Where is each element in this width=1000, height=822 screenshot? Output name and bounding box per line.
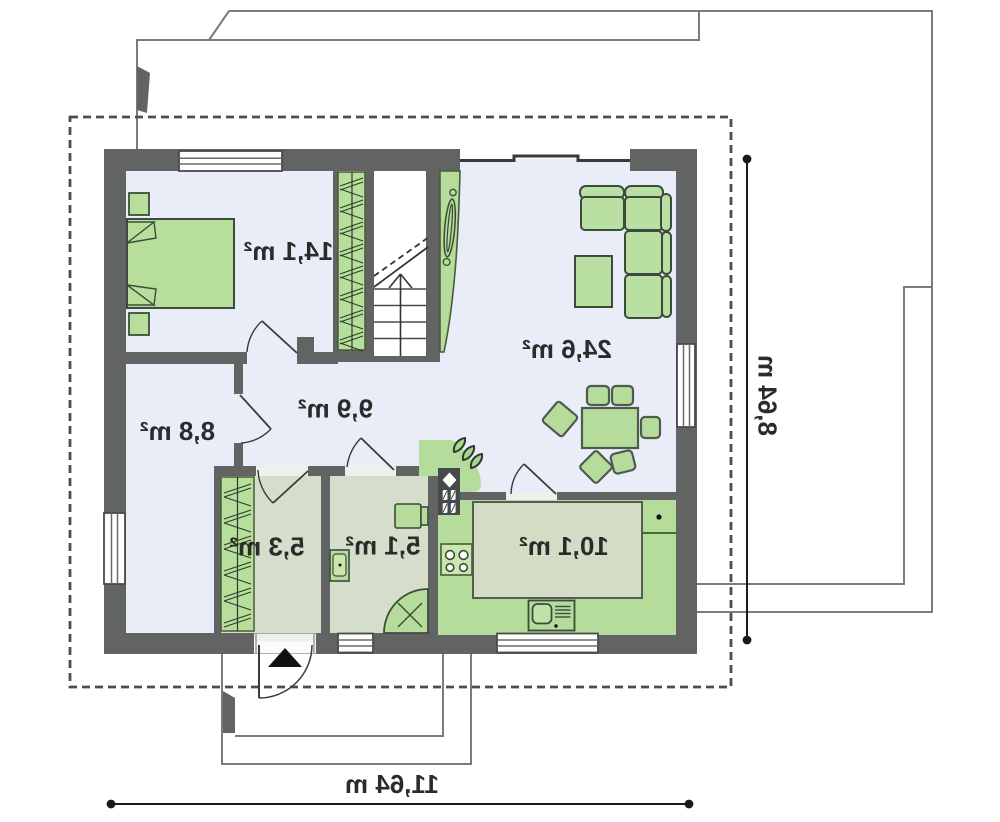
- svg-text:10,1 m²: 10,1 m²: [519, 531, 609, 561]
- svg-text:5,3 m²: 5,3 m²: [229, 532, 304, 562]
- svg-text:11,64 m: 11,64 m: [345, 769, 439, 799]
- svg-text:9,9 m²: 9,9 m²: [298, 394, 373, 424]
- svg-text:24,6 m²: 24,6 m²: [522, 334, 612, 364]
- svg-text:8,64 m: 8,64 m: [753, 355, 783, 436]
- svg-text:5,1 m²: 5,1 m²: [345, 531, 420, 561]
- svg-text:14,1 m²: 14,1 m²: [243, 236, 333, 266]
- svg-text:8,8 m²: 8,8 m²: [140, 416, 215, 446]
